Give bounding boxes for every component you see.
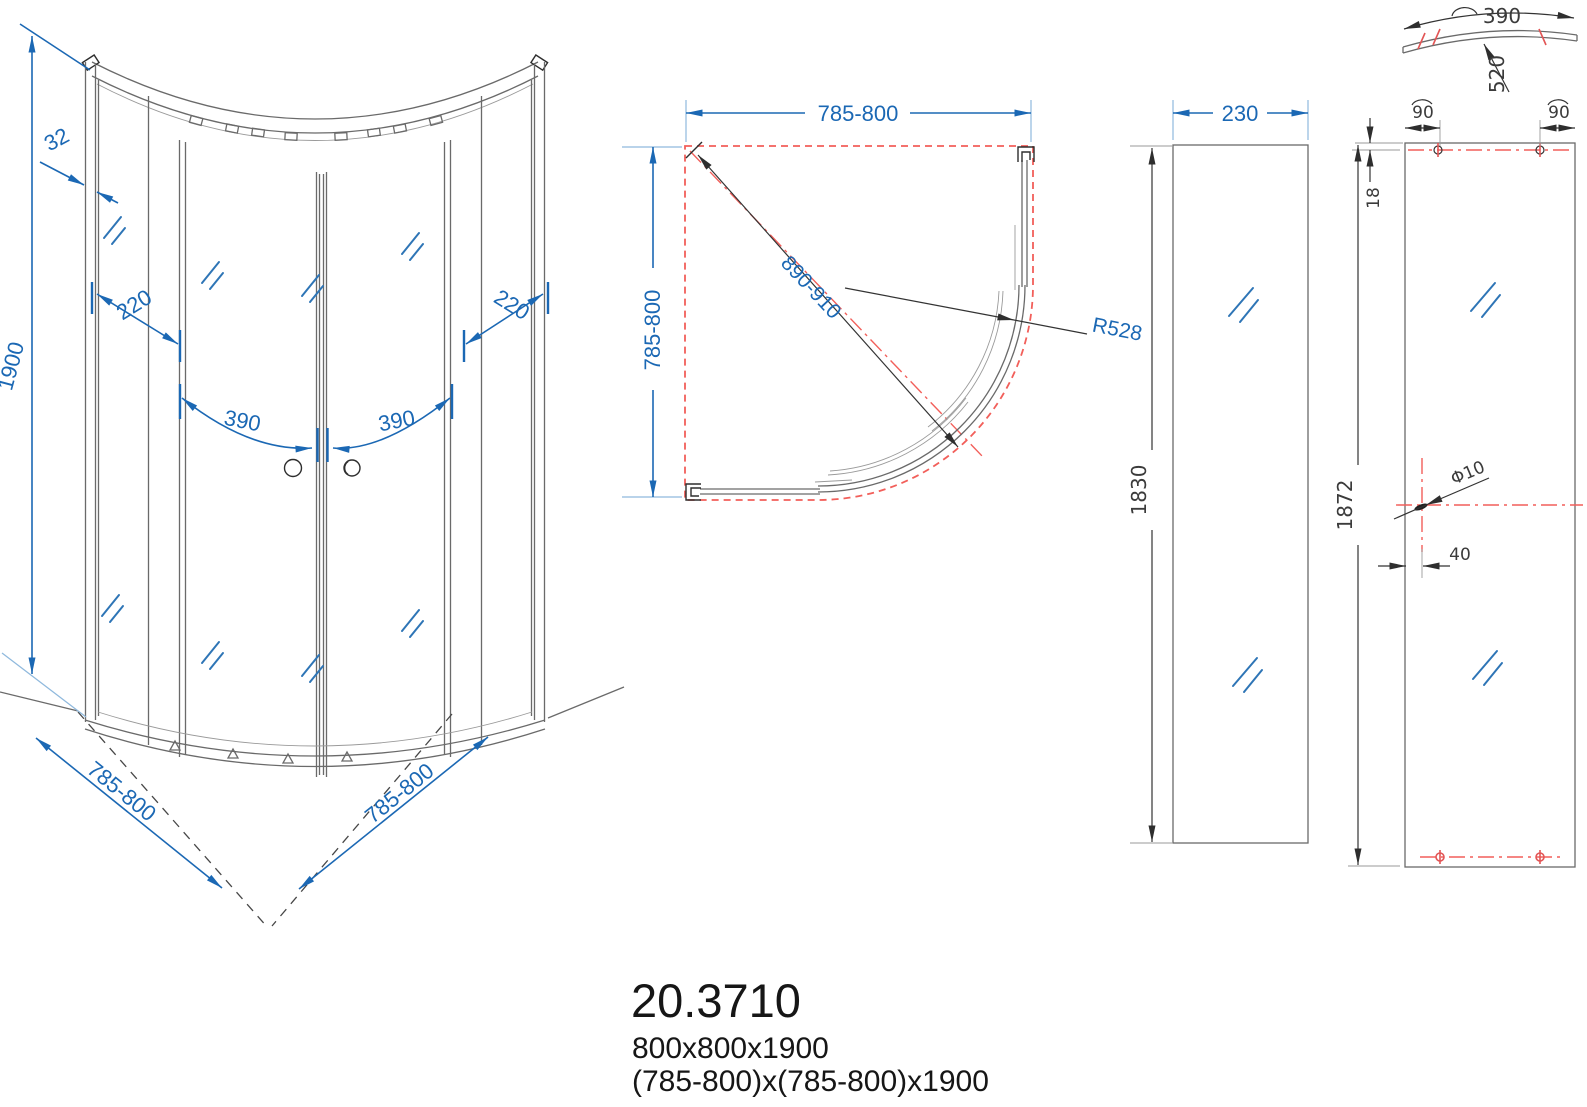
dim-door-right: 390 <box>328 384 453 462</box>
curve-radius-label: 520 <box>1485 55 1509 93</box>
dim-door-left: 390 <box>180 384 318 462</box>
arc-width-label: 390 <box>1483 4 1521 28</box>
technical-drawing-page: 1900 32 220 220 390 <box>0 0 1587 1107</box>
curved-strip-bottom <box>1403 37 1577 53</box>
model-number: 20.3710 <box>631 974 801 1027</box>
front-height-label: 1900 <box>0 339 29 393</box>
diagonal-opening-label: 890-910 <box>776 252 845 324</box>
door-arc-left-b <box>830 398 966 471</box>
base-right-label: 785-800 <box>360 758 438 828</box>
size-range: (785-800)x(785-800)x1900 <box>632 1065 989 1098</box>
fixed-panel-right-label: 220 <box>490 284 534 325</box>
dim-diagonal-opening: 890-910 <box>698 155 958 447</box>
dim-fixed-panel-right: 220 <box>464 282 548 362</box>
handle-hole: Φ10 <box>1394 457 1583 552</box>
dim-fixed-panel-left: 220 <box>92 282 180 362</box>
dim-base-left: 785-800 <box>36 738 222 888</box>
frame-profile-label: 32 <box>40 123 73 157</box>
side-height-label: 1830 <box>1127 465 1151 516</box>
fixed-panel-left-label: 220 <box>112 284 156 325</box>
dim-side-width: 230 <box>1173 100 1308 140</box>
curved-strip-top <box>1403 31 1577 47</box>
door-knob-left <box>285 460 302 477</box>
dim-frame-profile: 32 <box>40 123 118 203</box>
floor-line-right <box>548 687 624 718</box>
door-right-label: 390 <box>376 405 417 437</box>
door-left-label: 390 <box>222 405 263 437</box>
wall-profile-top-right <box>1018 147 1034 162</box>
tray-rim-lower <box>85 729 545 767</box>
side-width-label: 230 <box>1222 101 1259 126</box>
radius-label: R528 <box>1090 314 1144 346</box>
side-panel-view: 230 1830 <box>1127 100 1308 843</box>
door-arc-right-b <box>928 291 999 427</box>
dim-plan-depth: 785-800 <box>622 147 682 497</box>
dim-hole-offset-right: 90 <box>1540 100 1575 146</box>
glass-height-label: 1872 <box>1333 480 1357 531</box>
plan-view: 890-910 R528 785-800 785-800 <box>622 100 1144 500</box>
dim-base-right: 785-800 <box>299 737 488 889</box>
dim-plan-width: 785-800 <box>686 100 1031 142</box>
nominal-size: 800x800x1900 <box>632 1032 829 1065</box>
plan-depth-label: 785-800 <box>640 290 665 371</box>
dim-hole-top-offset: 18 <box>1352 118 1403 209</box>
hole-diameter-label: Φ10 <box>1448 457 1488 489</box>
wall-profile-bottom-left <box>686 484 701 500</box>
shower-enclosure-drawing: 1900 32 220 220 390 <box>0 0 1587 1107</box>
side-panel-outline <box>1173 145 1308 843</box>
hole-offset-left-label: 90 <box>1412 103 1434 123</box>
side-panel-reflections <box>1229 288 1262 692</box>
top-rail-outer <box>92 62 538 119</box>
hole-offset-right-label: 90 <box>1548 103 1570 123</box>
base-left-label: 785-800 <box>82 756 160 826</box>
dim-glass-height: 1872 <box>1333 145 1400 866</box>
door-arc-right-a <box>932 291 1003 431</box>
frame-posts <box>86 62 545 777</box>
top-rail-inner <box>92 76 538 133</box>
glass-reflections <box>102 217 423 682</box>
dim-front-height: 1900 <box>0 24 90 717</box>
dim-hole-offset-left: 90 <box>1405 100 1440 146</box>
hole-top-offset-label: 18 <box>1364 187 1384 209</box>
front-elevation-view: 1900 32 220 220 390 <box>0 24 624 928</box>
glass-panel-view: 390 520 90 90 <box>1333 4 1583 867</box>
dim-side-height: 1830 <box>1127 146 1172 843</box>
title-block: 20.3710 800x800x1900 (785-800)x(785-800)… <box>631 974 989 1098</box>
tray-rim-upper <box>85 720 545 756</box>
dim-radius: R528 <box>845 288 1144 346</box>
dim-hole-side-offset: 40 <box>1378 545 1471 578</box>
plan-width-label: 785-800 <box>818 101 899 126</box>
door-edge-bottom <box>815 480 852 482</box>
dim-curve-radius: 520 <box>1484 44 1509 93</box>
dim-arc-width: 390 <box>1404 4 1574 29</box>
hole-side-offset-label: 40 <box>1449 545 1471 565</box>
